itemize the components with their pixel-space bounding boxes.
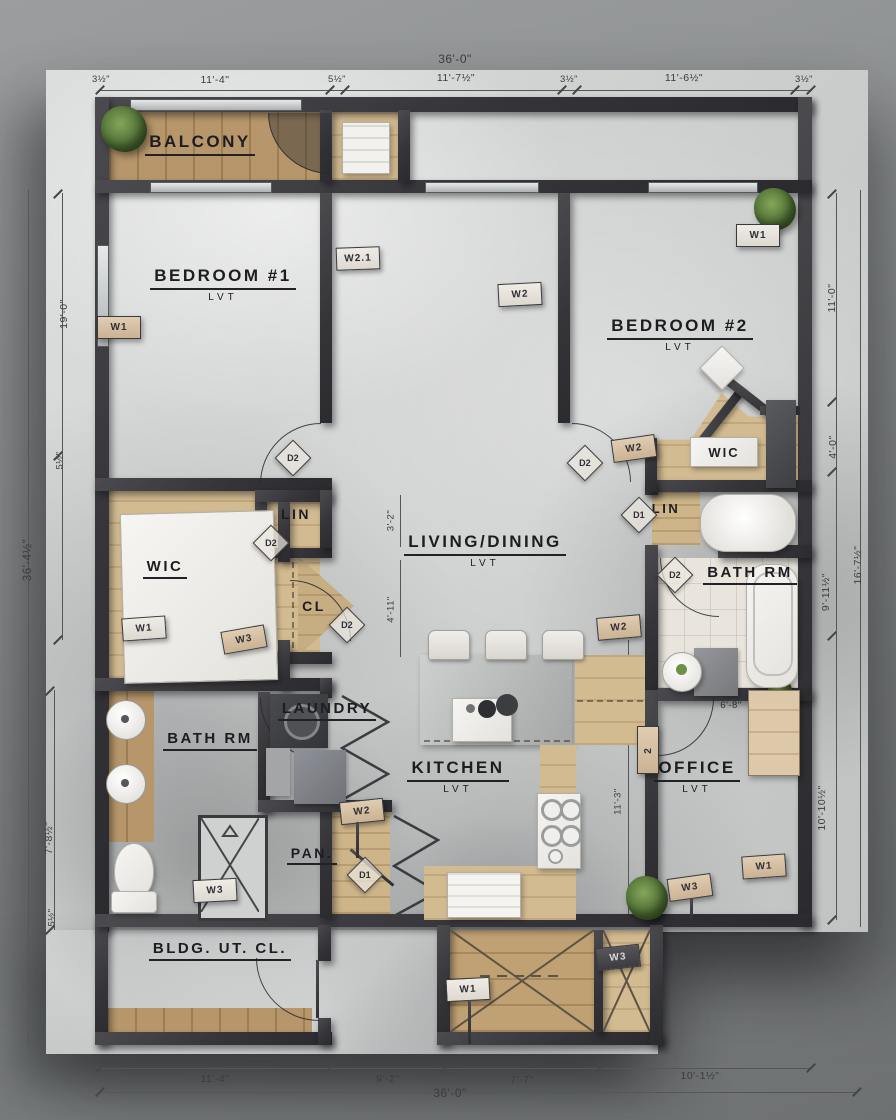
tag-text: D1 xyxy=(633,510,645,520)
tag-text: W2 xyxy=(511,289,529,301)
wall-bldg-right-a xyxy=(318,925,331,961)
wall-tag: W1 xyxy=(736,224,780,247)
wall-tag: W1 xyxy=(445,977,490,1002)
dim-top-2: 5½" xyxy=(322,74,352,85)
room-label-bldg-ut: BLDG. UT. CL. xyxy=(132,940,308,961)
bldg-door-leaf xyxy=(316,960,319,1018)
tag-text: W1 xyxy=(755,860,773,872)
kitchen-sink xyxy=(447,872,521,918)
dim-bottom-3: 10'-1½" xyxy=(666,1070,734,1082)
bathtub-inner xyxy=(753,572,793,676)
dim-top-1: 11'-4" xyxy=(185,74,245,86)
wall-tag: 2 xyxy=(637,726,659,774)
dim-line-top xyxy=(100,90,812,91)
tag-leader xyxy=(356,822,359,858)
wall-bldg-bottom xyxy=(95,1032,332,1045)
room-label-wic-left: WIC xyxy=(128,558,202,579)
tag-text: D2 xyxy=(579,458,591,468)
wall-tag: W1 xyxy=(741,853,786,879)
wall-left-bldg xyxy=(95,925,108,1045)
wic2-shelving xyxy=(766,400,796,488)
dim-top-5: 11'-6½" xyxy=(653,72,715,84)
room-label-wic-right-box: WIC xyxy=(690,437,758,467)
wall-tag: W2 xyxy=(596,614,642,641)
room-floor: LVT xyxy=(637,784,757,795)
wall-tag: W3 xyxy=(595,944,641,971)
coffee-maker xyxy=(478,700,496,718)
room-name: WIC xyxy=(143,558,188,579)
room-name: BATH RM xyxy=(703,564,797,585)
burner-5 xyxy=(548,849,563,864)
dim-right-1: 4'-0" xyxy=(827,422,839,472)
burner-4 xyxy=(560,825,582,847)
tag-text: W3 xyxy=(609,951,627,964)
tag-text: W3 xyxy=(681,881,699,894)
wall-left-exterior xyxy=(95,97,109,932)
dim-bottom-overall: 36'-0" xyxy=(418,1086,482,1100)
wall-tag: W3 xyxy=(192,878,237,903)
bath-right-table-plant xyxy=(676,664,687,675)
room-label-bath-right: BATH RM xyxy=(695,564,805,585)
dim-right-4: 10'-10½" xyxy=(816,766,828,850)
bath-left-sink-2-drain xyxy=(121,779,129,787)
room-name: BLDG. UT. CL. xyxy=(149,940,291,961)
tag-text: W2 xyxy=(610,621,628,633)
room-label-laundry: LAUNDRY xyxy=(272,700,382,721)
room-label-living: LIVING/DINING LVT xyxy=(400,532,570,569)
floor-plan-render: { "rooms": [ {"name":"BALCONY","floor":"… xyxy=(0,0,896,1120)
dim-left-3: 5½" xyxy=(47,898,58,938)
dim-left-overall: 36'-4½" xyxy=(22,522,34,598)
wall-tag: W2 xyxy=(497,282,542,307)
wall-tag: W1 xyxy=(97,316,141,339)
bldg-ut-shelf xyxy=(107,1008,312,1032)
dim-top-6: 3½" xyxy=(791,74,817,85)
room-name: LIVING/DINING xyxy=(404,532,565,556)
tag-text: W1 xyxy=(459,984,477,996)
bar-stool-1[interactable] xyxy=(428,630,470,660)
dryer xyxy=(294,750,346,804)
room-name: BALCONY xyxy=(145,132,255,156)
dim-top-0: 3½" xyxy=(88,74,114,85)
room-floor: LVT xyxy=(398,784,518,795)
wall-closet-right xyxy=(398,110,410,182)
tag-text: D2 xyxy=(287,453,299,463)
wall-tag: W2 xyxy=(339,798,385,825)
tag-text: D2 xyxy=(265,538,277,548)
dim-left-1: 5½" xyxy=(55,441,66,481)
tag-text: W2 xyxy=(625,442,643,455)
room-floor: LVT xyxy=(148,292,298,303)
window-balcony-top xyxy=(130,99,302,111)
wall-bed1-right xyxy=(320,193,332,423)
dim-int-6: 11'-3" xyxy=(613,776,624,828)
burner-2 xyxy=(560,799,582,821)
tag-text: W3 xyxy=(206,885,224,897)
room-floor: LVT xyxy=(400,558,570,569)
room-label-lin-left: LIN xyxy=(272,506,320,524)
room-label-kitchen: KITCHEN LVT xyxy=(398,758,518,795)
dim-bottom-0: 11'-4" xyxy=(185,1073,245,1085)
island-faucet xyxy=(466,704,475,713)
wall-shaftroom-divider xyxy=(594,930,603,1032)
room-name: BATH RM xyxy=(163,730,257,751)
soaking-tub-top xyxy=(700,494,796,552)
room-name: CL xyxy=(298,598,330,616)
wic-left-island xyxy=(120,510,278,684)
bar-stool-2[interactable] xyxy=(485,630,527,660)
room-name: WIC xyxy=(708,445,739,460)
room-name: PAN. xyxy=(287,845,337,865)
dim-int-5: 6'-8" xyxy=(709,700,753,711)
room-label-bath-left: BATH RM xyxy=(155,730,265,751)
room-label-balcony: BALCONY xyxy=(125,132,275,156)
tag-text: W3 xyxy=(235,633,254,647)
dim-int-2: 4'-11" xyxy=(386,585,397,635)
room-name: KITCHEN xyxy=(407,758,508,782)
toilet-tank xyxy=(111,891,157,913)
dim-line-left-upper xyxy=(62,193,63,640)
wall-bed2-left xyxy=(558,193,570,423)
wall-tag: W2.1 xyxy=(336,246,381,271)
tag-text: 2 xyxy=(643,747,654,754)
dim-line-bottom xyxy=(100,1068,812,1069)
window-bed2-top xyxy=(648,182,758,193)
dim-bottom-1: 9'-2" xyxy=(358,1073,418,1085)
wall-col645-b xyxy=(645,545,658,690)
dim-right-0: 11'-0" xyxy=(826,263,838,333)
tag-text: D2 xyxy=(341,620,353,630)
dim-top-4: 3½" xyxy=(556,74,582,85)
room-label-bedroom2: BEDROOM #2 LVT xyxy=(600,316,760,353)
wall-bldg-right-b xyxy=(318,1018,331,1045)
wall-tag: W1 xyxy=(121,615,166,641)
room-name: LAUNDRY xyxy=(278,700,376,721)
wall-lin-left-right xyxy=(320,490,332,548)
office-plant xyxy=(626,876,668,920)
dim-right-2: 16'-7½" xyxy=(852,527,864,603)
room-label-cl: CL xyxy=(290,598,338,616)
entry-bench xyxy=(342,122,390,174)
tag-text: W1 xyxy=(750,230,767,241)
tag-text: D2 xyxy=(669,570,681,580)
tag-text: W2.1 xyxy=(344,253,372,265)
room-floor: LVT xyxy=(600,342,760,353)
bar-stool-3[interactable] xyxy=(542,630,584,660)
tag-text: W1 xyxy=(111,322,128,333)
dim-bottom-2: 7'-7" xyxy=(492,1074,552,1086)
wall-right-exterior xyxy=(798,97,812,927)
counter-dashed-line xyxy=(577,700,643,702)
dim-line-left-outer xyxy=(28,190,29,1045)
laundry-door-panel xyxy=(266,748,290,796)
room-name: BEDROOM #2 xyxy=(607,316,752,340)
bath-left-sink-1-drain xyxy=(121,715,129,723)
window-balcony-slider xyxy=(150,182,272,193)
window-living-top xyxy=(425,182,539,193)
wall-shaftroom-right xyxy=(650,925,663,1045)
dim-top-3: 11'-7½" xyxy=(425,72,487,84)
dim-left-0: 19'-0" xyxy=(58,278,70,350)
room-label-pantry: PAN. xyxy=(280,845,344,865)
dim-line-int-2 xyxy=(400,560,401,657)
room-name: LIN xyxy=(277,506,315,524)
tag-text: W1 xyxy=(135,622,153,634)
tag-leader xyxy=(468,1000,471,1044)
dim-top-overall: 36'-0" xyxy=(420,52,490,66)
room-name: BEDROOM #1 xyxy=(150,266,295,290)
tag-leader xyxy=(690,898,693,922)
room-name: OFFICE xyxy=(654,758,739,782)
dim-left-2: 7'-8½" xyxy=(43,803,55,873)
dim-right-3: 9'-11½" xyxy=(820,552,832,632)
tag-text: W2 xyxy=(353,805,371,818)
dim-int-1: 3'-2" xyxy=(386,499,397,543)
room-label-bedroom1: BEDROOM #1 LVT xyxy=(148,266,298,303)
tag-text: D1 xyxy=(359,870,371,880)
kettle xyxy=(496,694,518,716)
